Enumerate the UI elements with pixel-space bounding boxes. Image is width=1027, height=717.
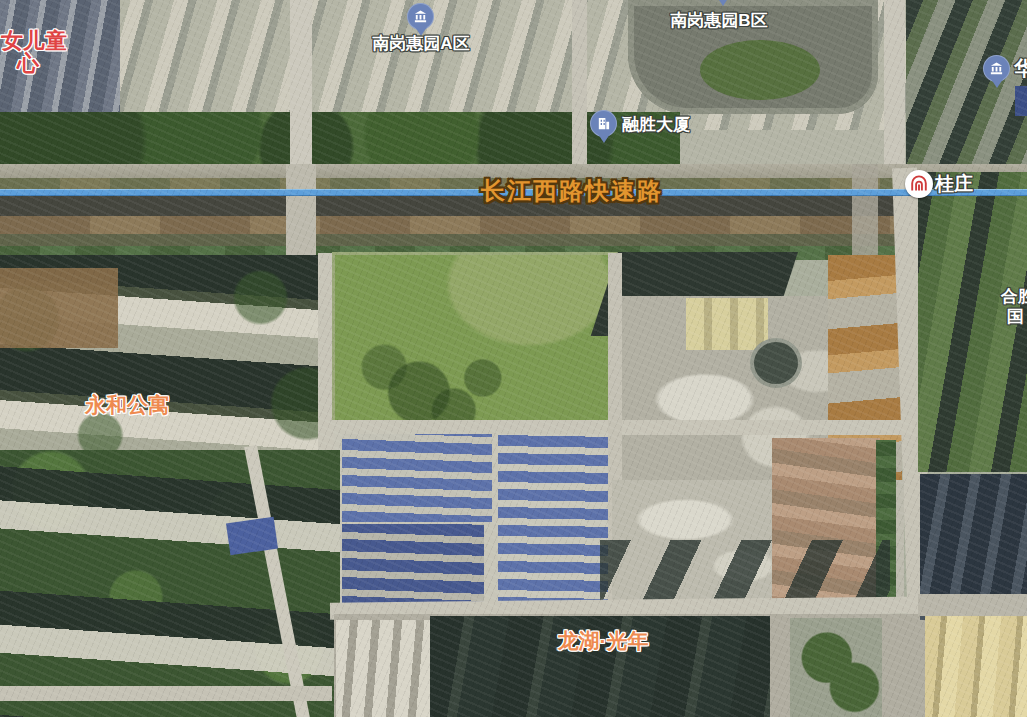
building-pin-icon <box>413 9 428 24</box>
vacant-green-field <box>332 252 622 432</box>
metro-logo-icon <box>909 174 929 194</box>
dormitory-blue-roofs-b <box>342 524 484 608</box>
urban-block-northeast <box>906 0 1027 172</box>
partial-label-hesheng-line2: 国 <box>1007 308 1024 326</box>
area-label-yonghe[interactable]: 永和公寓 <box>85 394 169 416</box>
dirt-channel-overlay <box>0 268 118 348</box>
blue-shed-northeast <box>1015 86 1027 116</box>
poi-label-rongsheng[interactable]: 融胜大厦 <box>622 116 690 134</box>
road-crossing-west <box>286 164 316 260</box>
dormitory-blue-roofs-a <box>342 434 492 522</box>
poi-label-hua[interactable]: 华 <box>1014 58 1027 79</box>
building-pin-icon <box>596 116 611 131</box>
poi-pin-rongsheng[interactable] <box>590 110 617 137</box>
metro-station-badge[interactable] <box>905 170 933 198</box>
partial-label-women-children-line1: 女儿童 <box>1 29 67 52</box>
metro-station-label[interactable]: 桂庄 <box>935 174 973 194</box>
trees-southeast-gap <box>918 594 1027 616</box>
poi-pin-hua[interactable] <box>983 55 1010 82</box>
blue-roof-building-southwest <box>226 517 278 555</box>
area-label-longhu[interactable]: 龙湖·光年 <box>558 630 649 652</box>
partial-label-women-children-line2: 心 <box>17 52 39 75</box>
road-southwest-horizontal <box>0 686 332 701</box>
poi-label-nangang-a[interactable]: 南岗惠园A区 <box>372 35 469 53</box>
yellow-buildings-southeast <box>925 616 1027 717</box>
construction-yellow-buildings <box>686 298 768 350</box>
longhu-green-patch <box>790 618 882 717</box>
construction-circular-pit <box>750 338 802 388</box>
road-name-label: 长江西路快速路 <box>481 178 663 203</box>
poi-pin-nangang-a[interactable] <box>407 3 434 30</box>
satellite-map[interactable]: 南岗惠园A区 南岗惠园B区 融胜大厦 华 桂庄 长江西路快速路 永和公寓 龙 <box>0 0 1027 717</box>
dormitory-blue-roofs-c <box>498 434 608 608</box>
building-pin-icon <box>989 61 1004 76</box>
poi-label-nangang-b[interactable]: 南岗惠园B区 <box>670 12 767 30</box>
nangang-b-lawn <box>700 40 820 100</box>
longhu-white-buildings <box>336 620 432 717</box>
road-north-vertical-2 <box>572 0 587 170</box>
partial-label-hesheng-line1: 合胜 <box>1001 288 1027 306</box>
road-north-vertical-3 <box>884 0 905 176</box>
road-crossing-east <box>852 164 878 260</box>
